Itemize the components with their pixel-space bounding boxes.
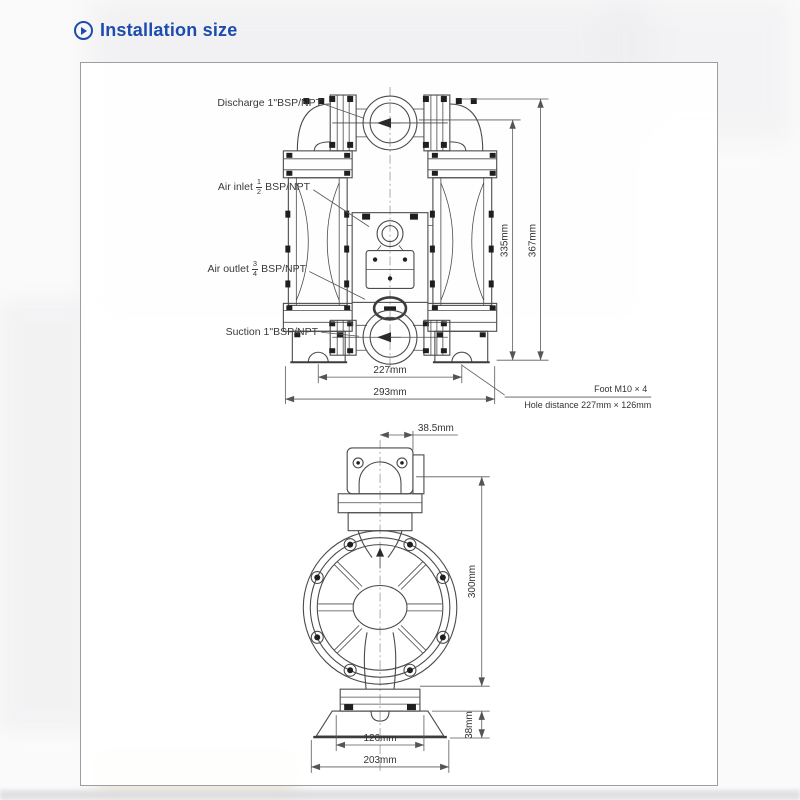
air-outlet-fraction: 3 4 [252, 260, 258, 278]
dim-bolt-span: 126mm [363, 733, 396, 744]
section-title: Installation size [100, 20, 237, 41]
air-inlet-fraction: 1 2 [256, 178, 262, 196]
label-air-outlet-suffix: BSP/NPT [261, 263, 306, 275]
dim-outer-height: 367mm [528, 224, 539, 257]
label-air-inlet-suffix: BSP/NPT [265, 181, 310, 193]
side-view-diagram [303, 440, 457, 772]
front-view-dimensions: 335mm 367mm 227mm 293mm Foot M10 × 4 Hol… [285, 99, 651, 410]
note-foot: Foot M10 × 4 [594, 384, 647, 394]
dim-body-height: 300mm [467, 565, 478, 598]
dim-inner-height: 335mm [500, 224, 511, 257]
section-header: Installation size [74, 20, 237, 41]
label-air-outlet-port: Air outlet 3 4 BSP/NPT [207, 260, 306, 278]
pump-technical-drawing: 335mm 367mm 227mm 293mm Foot M10 × 4 Hol… [81, 63, 717, 785]
play-circle-icon [74, 21, 93, 40]
label-air-inlet-prefix: Air inlet [218, 181, 253, 193]
fraction-denominator: 4 [253, 270, 257, 279]
label-suction-text: Suction 1"BSP/NPT [226, 326, 318, 338]
dim-foot-height: 38mm [464, 711, 475, 739]
dim-top-offset: 38.5mm [418, 423, 454, 434]
dim-base-width: 203mm [363, 755, 396, 766]
background-photo-ghost [0, 790, 800, 800]
fraction-denominator: 2 [257, 188, 261, 197]
side-view-dimensions: 38.5mm 300mm 38mm 126mm 203mm [311, 423, 489, 773]
note-hole-distance: Hole distance 227mm × 126mm [524, 400, 651, 410]
dim-inner-width: 227mm [373, 365, 406, 376]
label-discharge-port: Discharge 1"BSP/NPT [217, 97, 322, 109]
label-discharge-text: Discharge 1"BSP/NPT [217, 97, 322, 109]
label-air-inlet-port: Air inlet 1 2 BSP/NPT [218, 178, 310, 196]
dim-outer-width: 293mm [373, 387, 406, 398]
label-suction-port: Suction 1"BSP/NPT [226, 326, 318, 338]
label-air-outlet-prefix: Air outlet [207, 263, 248, 275]
installation-size-panel: 335mm 367mm 227mm 293mm Foot M10 × 4 Hol… [80, 62, 718, 786]
